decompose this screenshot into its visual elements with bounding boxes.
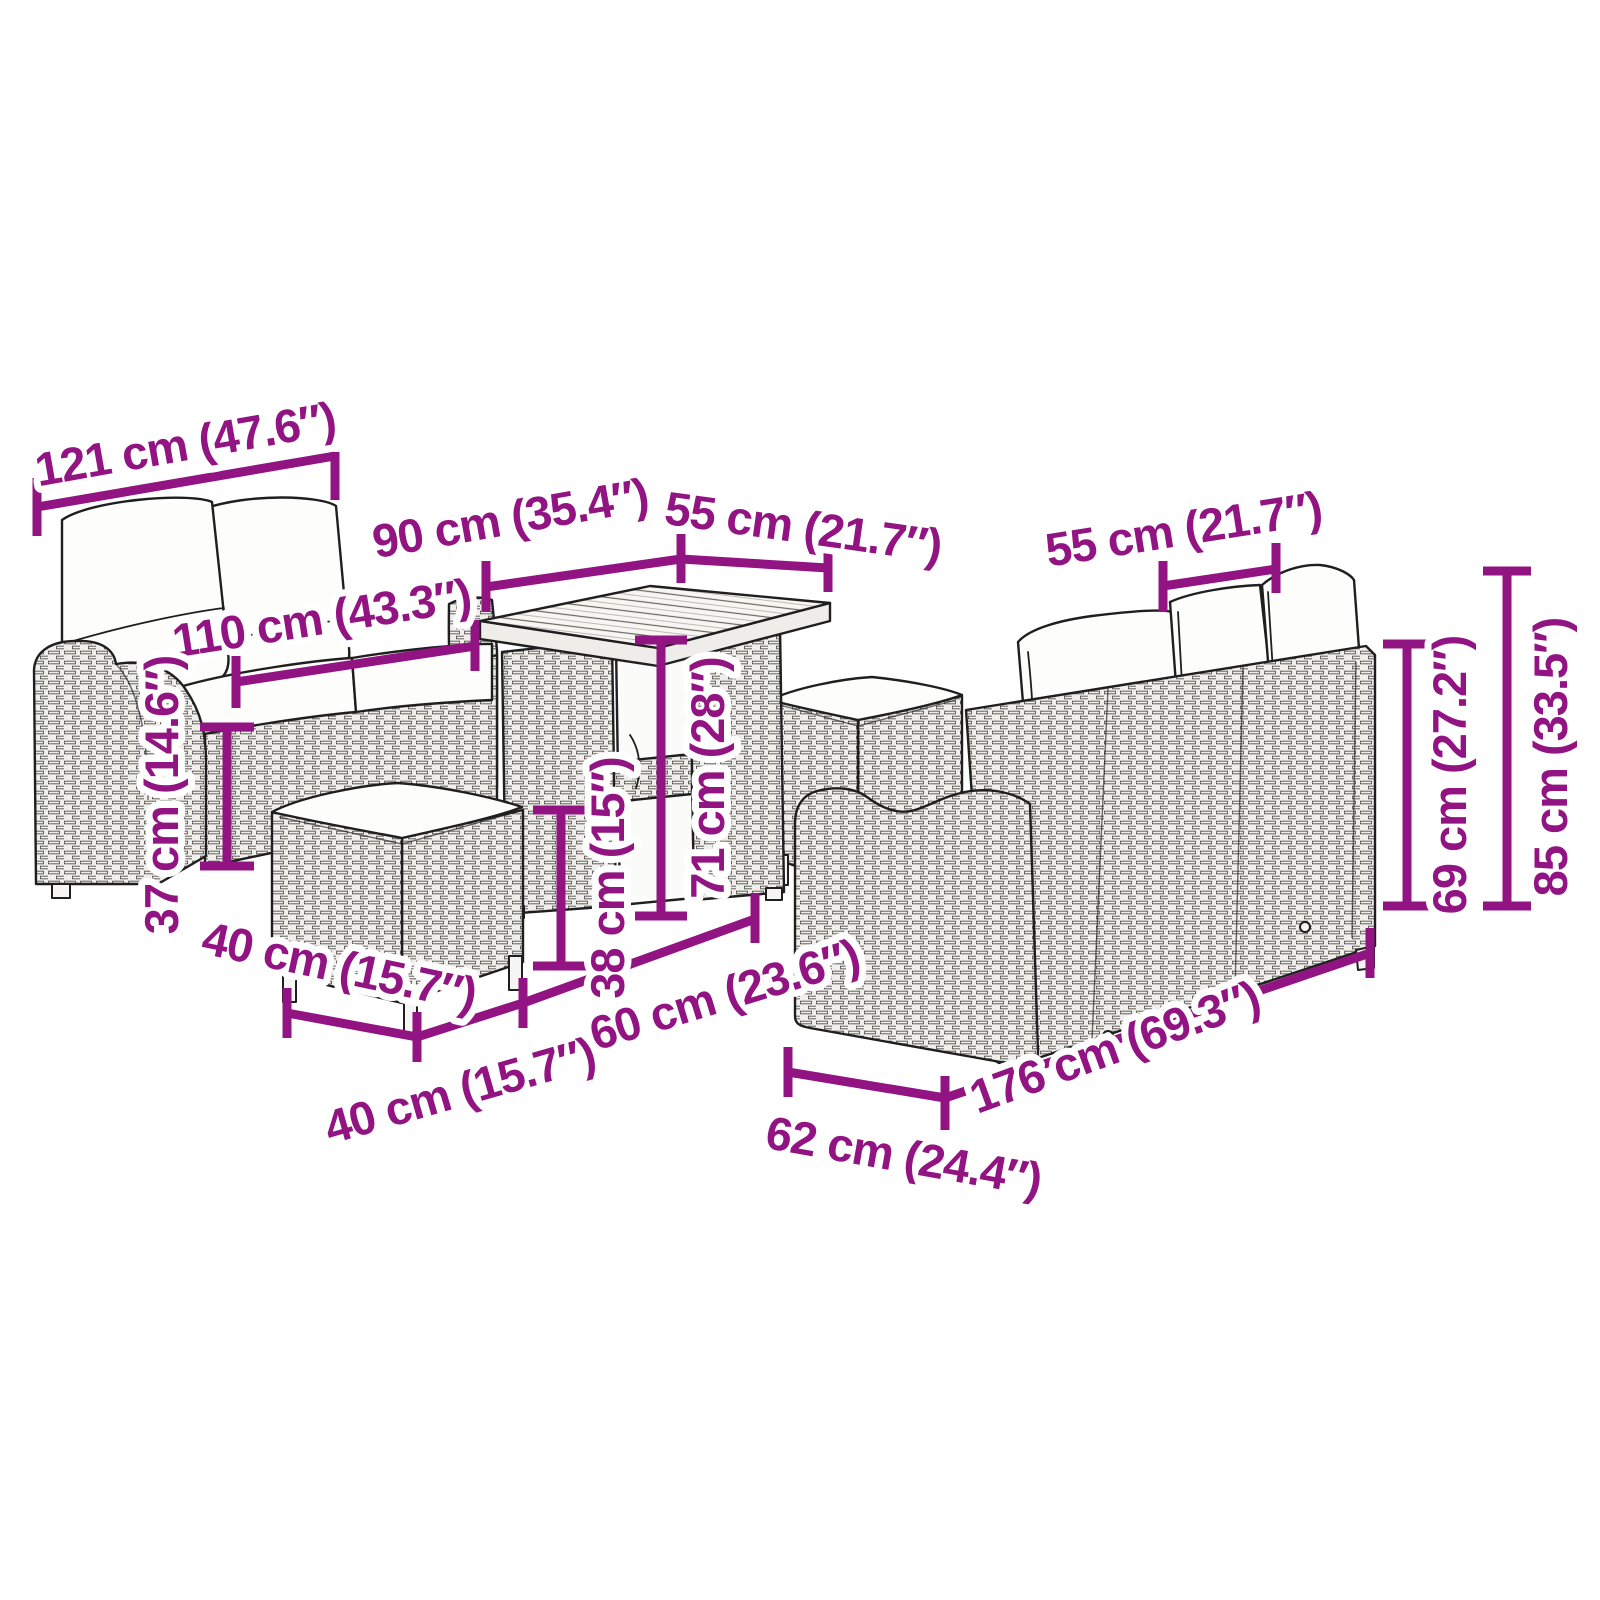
dim-sofa3-cushion-width-label: 55 cm (21.7″) — [1042, 481, 1325, 577]
furniture-dimensions-diagram: 121 cm (47.6″) 110 cm (43.3″) 90 cm (35.… — [0, 0, 1600, 1600]
dim-table-length-label: 90 cm (35.4″) — [368, 467, 652, 568]
table-foot — [766, 888, 782, 900]
sofa3-left-arm — [795, 788, 1038, 1066]
dim-sofa3-depth-label: 62 cm (24.4″) — [762, 1105, 1046, 1206]
dim-sofa3-total-height-label: 85 cm (33.5″) — [1524, 618, 1577, 897]
dim-table-height-label: 71 cm (28″) — [681, 657, 734, 898]
sofa3-screw-hole — [1300, 922, 1310, 932]
three-seater-sofa — [795, 565, 1375, 1084]
sofa2-foot — [52, 884, 70, 898]
dim-stool-height-label: 38 cm (15″) — [581, 757, 634, 998]
dim-stool-depth-label: 40 cm (15.7″) — [318, 1026, 600, 1154]
dim-sofa3-back-height-label: 69 cm (27.2″) — [1423, 636, 1476, 915]
dim-sofa2-seat-height-label: 37 cm (14.6″) — [135, 656, 188, 935]
diagram-canvas: 121 cm (47.6″) 110 cm (43.3″) 90 cm (35.… — [0, 0, 1600, 1600]
